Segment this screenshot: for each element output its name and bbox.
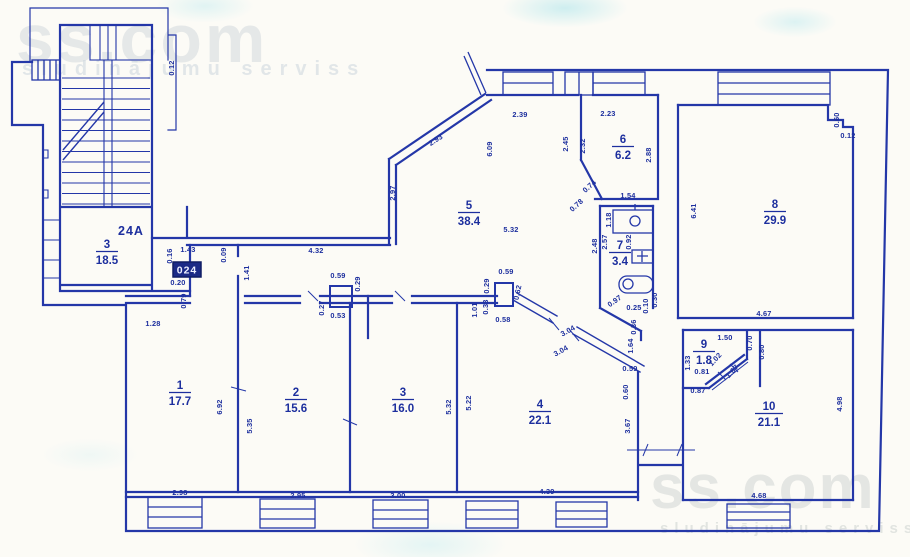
room-number: 2 <box>293 387 299 399</box>
room-label: 1021.1 <box>755 401 783 429</box>
room-area: 29.9 <box>764 215 786 227</box>
floorplan-scan: ss.com sludinājumu serviss ss.com sludin… <box>0 0 910 557</box>
room-label: 215.6 <box>285 387 307 415</box>
room-label: 422.1 <box>529 399 552 427</box>
dimension-label: 4.32 <box>308 246 323 255</box>
sink <box>613 210 653 233</box>
dimension-label: 1.33 <box>683 355 692 370</box>
floorplan-svg: 24A 024 318.5117.7215.6316.0422.1538.466… <box>0 0 910 557</box>
room-number: 6 <box>620 134 626 146</box>
dimension-label: 2.48 <box>590 238 599 253</box>
room-number: 3 <box>400 387 406 399</box>
building-address-label: 24A <box>118 224 144 238</box>
room-area: 3.4 <box>612 256 629 268</box>
dimension-label: 0.59 <box>498 267 513 276</box>
room-label: 538.4 <box>458 200 481 228</box>
labels-layer: 318.5117.7215.6316.0422.1538.466.273.482… <box>96 60 856 500</box>
dimension-label: 0.25 <box>626 303 641 312</box>
room-number: 9 <box>701 339 707 351</box>
dimension-label: 0.12 <box>840 131 855 140</box>
dimension-label: 6.41 <box>689 203 698 218</box>
dimension-label: 2.88 <box>644 147 653 162</box>
dimension-label: 0.53 <box>330 311 345 320</box>
dimension-label: 1.41 <box>242 265 251 280</box>
sink-drain-icon <box>630 216 640 226</box>
dimension-label: 0.97 <box>606 293 624 309</box>
room-number: 3 <box>104 239 110 251</box>
dimension-label: 0.62 <box>512 284 524 301</box>
dimension-label: 0.81 <box>694 367 709 376</box>
dimension-label: 4.68 <box>751 491 766 500</box>
room-area: 18.5 <box>96 255 119 267</box>
dimension-label: 0.60 <box>621 384 630 399</box>
dimension-label: 0.87 <box>690 386 705 395</box>
dimension-label: 5.22 <box>464 395 473 410</box>
dimension-label: 3.00 <box>390 491 405 500</box>
dimension-label: 6.92 <box>215 399 224 414</box>
dimension-label: 0.09 <box>219 247 228 262</box>
dimension-label: 1.01 <box>470 302 479 317</box>
room-area: 16.0 <box>392 403 414 415</box>
room-number: 5 <box>466 200 473 212</box>
dimension-label: 0.29 <box>353 276 362 291</box>
room-label: 66.2 <box>612 134 634 162</box>
room-number: 8 <box>772 199 779 211</box>
dimension-label: 0.78 <box>568 197 585 214</box>
room-area: 22.1 <box>529 415 552 427</box>
dimension-label: 2.57 <box>600 234 609 249</box>
toilet <box>619 276 653 293</box>
dimension-label: 0.92 <box>624 234 633 249</box>
room-number: 1 <box>177 380 184 392</box>
room-number: 10 <box>763 401 776 413</box>
dimension-label: 0.74 <box>581 177 599 194</box>
dimension-label: 1.28 <box>145 319 160 328</box>
dimension-label: 0.80 <box>757 344 766 359</box>
room-number: 7 <box>617 240 623 252</box>
dimension-label: 0.20 <box>170 278 185 287</box>
dimension-label: 2.97 <box>388 185 397 200</box>
dimension-label: 0.59 <box>622 364 637 373</box>
toilet-icon <box>623 279 633 289</box>
dimension-label: 0.60 <box>832 112 841 127</box>
dimension-label: 1.43 <box>180 245 195 254</box>
dimension-label: 2.39 <box>512 110 527 119</box>
dimension-label: 2.23 <box>600 109 615 118</box>
dimension-label: 0.79 <box>179 293 188 308</box>
room-area: 17.7 <box>169 396 191 408</box>
dimension-label: 4.98 <box>835 396 844 411</box>
dimension-label: 0.58 <box>495 315 510 324</box>
dimension-label: 0.36 <box>629 319 638 334</box>
dimension-label: 2.32 <box>578 138 587 153</box>
dimension-label: 0.10 <box>641 298 650 313</box>
room-area: 6.2 <box>615 150 631 162</box>
room-label: 316.0 <box>392 387 414 415</box>
dimension-label: 4.67 <box>756 309 771 318</box>
dimension-label: 3.04 <box>552 343 570 359</box>
dimension-label: 3.67 <box>623 418 632 433</box>
room-label: 829.9 <box>764 199 786 227</box>
room-number: 4 <box>537 399 544 411</box>
dimension-label: 0.12 <box>167 60 176 75</box>
dimension-label: 1.02 <box>707 351 724 368</box>
dimension-label: 0.29 <box>482 278 491 293</box>
room-area: 21.1 <box>758 417 781 429</box>
dimension-label: 4.39 <box>539 487 554 496</box>
dimension-label: 5.35 <box>245 418 254 433</box>
dimension-label: 2.95 <box>290 491 305 500</box>
room-label: 117.7 <box>169 380 191 408</box>
dimension-label: 0.16 <box>165 248 174 263</box>
unit-badge: 024 <box>173 262 201 277</box>
dimension-label: 0.59 <box>330 271 345 280</box>
dimension-label: 0.33 <box>481 299 490 314</box>
exterior-walls <box>12 8 888 531</box>
dimension-label: 0.70 <box>745 335 754 350</box>
room-area: 15.6 <box>285 403 307 415</box>
dimension-label: 2.98 <box>172 488 187 497</box>
dimension-label: 1.18 <box>604 212 613 227</box>
room-area: 38.4 <box>458 216 481 228</box>
dimension-label: 6.09 <box>485 141 494 156</box>
dimension-label: 1.54 <box>620 191 636 200</box>
dimension-label: 1.64 <box>626 338 635 354</box>
dimension-label: 2.45 <box>561 136 570 151</box>
fixtures <box>231 204 748 456</box>
dimension-label: 0.27 <box>317 300 326 315</box>
dimension-label: 0.30 <box>650 292 659 307</box>
unit-badge-label: 024 <box>177 265 198 277</box>
dimension-label: 1.50 <box>717 333 732 342</box>
staircase <box>62 25 152 207</box>
dimension-label: 5.32 <box>503 225 518 234</box>
room-label: 318.5 <box>96 239 119 267</box>
dimension-label: 5.32 <box>444 399 453 414</box>
